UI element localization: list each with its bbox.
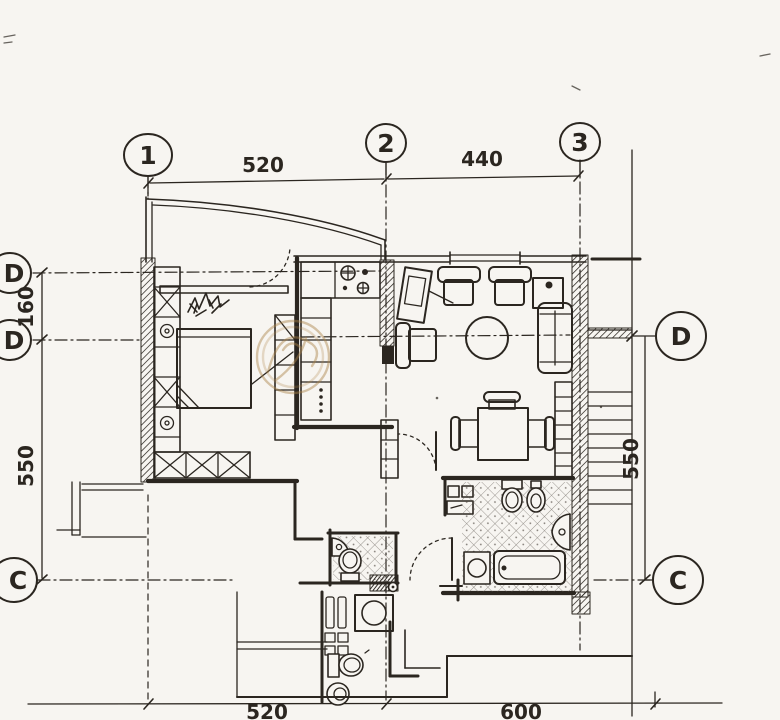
kitchen-wall-stub xyxy=(382,346,394,364)
west-exterior-wall xyxy=(141,258,155,482)
cooktop xyxy=(341,266,369,294)
grid-bubble-col-3: 3 xyxy=(560,123,600,161)
dim-label-right-550: 550 xyxy=(619,438,643,480)
washing-machine xyxy=(464,552,490,584)
plant xyxy=(188,293,229,316)
door-swing xyxy=(398,434,436,470)
balcony-terrace xyxy=(146,197,385,293)
wardrobe-bottom xyxy=(154,452,250,478)
dim-line-top-520 xyxy=(150,179,384,183)
toilet xyxy=(502,480,522,512)
kitchen-counter-top xyxy=(301,262,380,298)
shelf-unit xyxy=(555,382,572,478)
dining-table xyxy=(478,408,528,460)
dining-chair-left xyxy=(451,417,478,450)
armchair-3 xyxy=(396,323,436,368)
grid-bubble-col-2: 2 xyxy=(366,124,406,162)
dining-chair-right xyxy=(528,417,554,450)
dim-label-top-440: 440 xyxy=(461,147,503,171)
bathroom-door xyxy=(410,538,452,580)
floor-plan-sheet: 520 440 160 550 550 520 600 xyxy=(0,0,780,720)
coffee-table xyxy=(466,317,508,359)
grid-lines xyxy=(33,150,652,716)
door-swing xyxy=(410,538,452,580)
grid-bubble-row-c-left: C xyxy=(0,558,37,602)
dim-label-top-520: 520 xyxy=(242,153,284,177)
dim-line-top-440 xyxy=(388,176,578,179)
laundry-toilet xyxy=(328,650,369,677)
dim-line-bottom xyxy=(28,703,722,704)
grid-bubble-label: 3 xyxy=(571,128,588,157)
floor-plan-drawing: 520 440 160 550 550 520 600 xyxy=(0,0,780,720)
step-walls xyxy=(390,622,440,676)
laundry xyxy=(322,592,440,705)
dining-chair-top xyxy=(484,392,520,409)
wc-toilet xyxy=(339,549,361,581)
grid-bubble-row-c-right: C xyxy=(653,556,703,604)
dim-label-left-550: 550 xyxy=(14,445,38,487)
bathtub xyxy=(494,551,565,584)
grid-bubble-label: 2 xyxy=(377,129,394,158)
kitchen xyxy=(301,262,380,420)
grid-bubble-label: C xyxy=(669,566,687,595)
living-room xyxy=(396,267,572,373)
grid-bubble-label: 1 xyxy=(139,141,156,170)
grid-bubble-label: D xyxy=(4,326,25,355)
lamp-icon xyxy=(546,282,553,289)
watermark-logo xyxy=(257,321,329,393)
washer-2 xyxy=(355,595,393,631)
round-basin xyxy=(327,683,349,705)
tv-icon xyxy=(405,276,426,306)
corner-wall-hatch xyxy=(572,592,590,614)
grid-bubble-label: D xyxy=(4,259,25,288)
grid-bubble-row-d2-left: D xyxy=(0,320,31,360)
bed xyxy=(177,329,251,408)
grid-bubble-label: D xyxy=(671,322,692,351)
faucet-icon xyxy=(502,566,507,571)
grid-line-d1-horizontal xyxy=(33,271,383,273)
grid-bubble-row-d1-left: D xyxy=(0,253,31,293)
balcony-door-swing xyxy=(250,248,290,287)
sofa xyxy=(538,303,572,373)
grid-bubble-label: C xyxy=(9,566,27,595)
kitchen-east-wall-hatch xyxy=(380,260,394,346)
balcony-curved-edge xyxy=(147,199,385,240)
armchair-2 xyxy=(489,267,531,305)
grid-bubble-row-d-right: D xyxy=(656,312,706,360)
bedroom xyxy=(154,267,295,478)
dim-label-bottom-520: 520 xyxy=(246,700,288,720)
east-exterior-wall xyxy=(572,255,588,597)
dim-label-bottom-600: 600 xyxy=(500,700,542,720)
grid-bubble-col-1: 1 xyxy=(124,134,172,176)
armchair-1 xyxy=(438,267,480,305)
tv-unit xyxy=(397,267,432,323)
bathroom xyxy=(410,480,572,592)
cabinet-strip xyxy=(325,597,348,655)
drainer-dots xyxy=(319,388,323,413)
